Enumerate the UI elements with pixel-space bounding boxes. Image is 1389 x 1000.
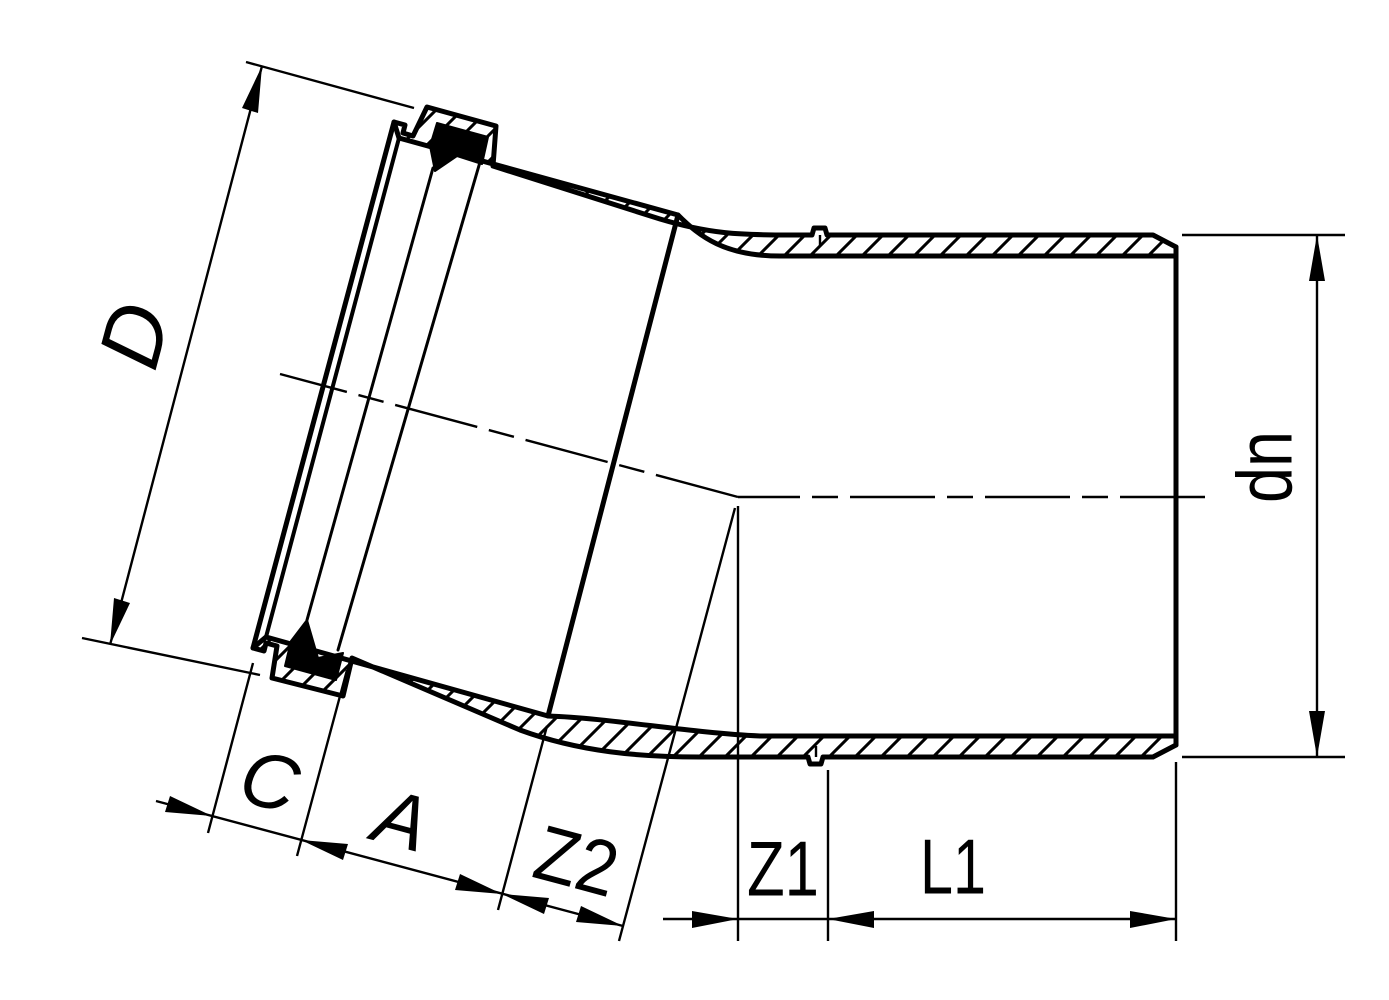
- dim-label-C: C: [231, 731, 309, 831]
- gasket-groove-circle-line: [338, 162, 480, 650]
- dim-label-L1: L1: [920, 823, 986, 911]
- fitting-body: [253, 107, 1176, 764]
- wall-section-top: [394, 107, 1176, 256]
- dimension-dn: dn: [1182, 235, 1345, 757]
- drawing-canvas: D C A Z2 Z1 L1 dn: [0, 0, 1389, 1000]
- dim-label-Z1: Z1: [747, 825, 819, 913]
- centerline-socket: [280, 374, 738, 497]
- dim-label-dn: dn: [1221, 431, 1309, 503]
- dimension-D: D: [81, 62, 414, 675]
- centerlines: [280, 374, 1205, 497]
- dimension-D-lines: [82, 62, 414, 675]
- wall-section-bottom: [253, 637, 1176, 764]
- socket-seat-line: [548, 215, 678, 716]
- dimension-Z1-L1: Z1 L1: [663, 506, 1176, 941]
- dim-label-D: D: [81, 293, 190, 378]
- gasket-lip-circle-line: [307, 168, 433, 620]
- dim-label-A: A: [361, 770, 438, 870]
- technical-drawing: D C A Z2 Z1 L1 dn: [0, 0, 1389, 1000]
